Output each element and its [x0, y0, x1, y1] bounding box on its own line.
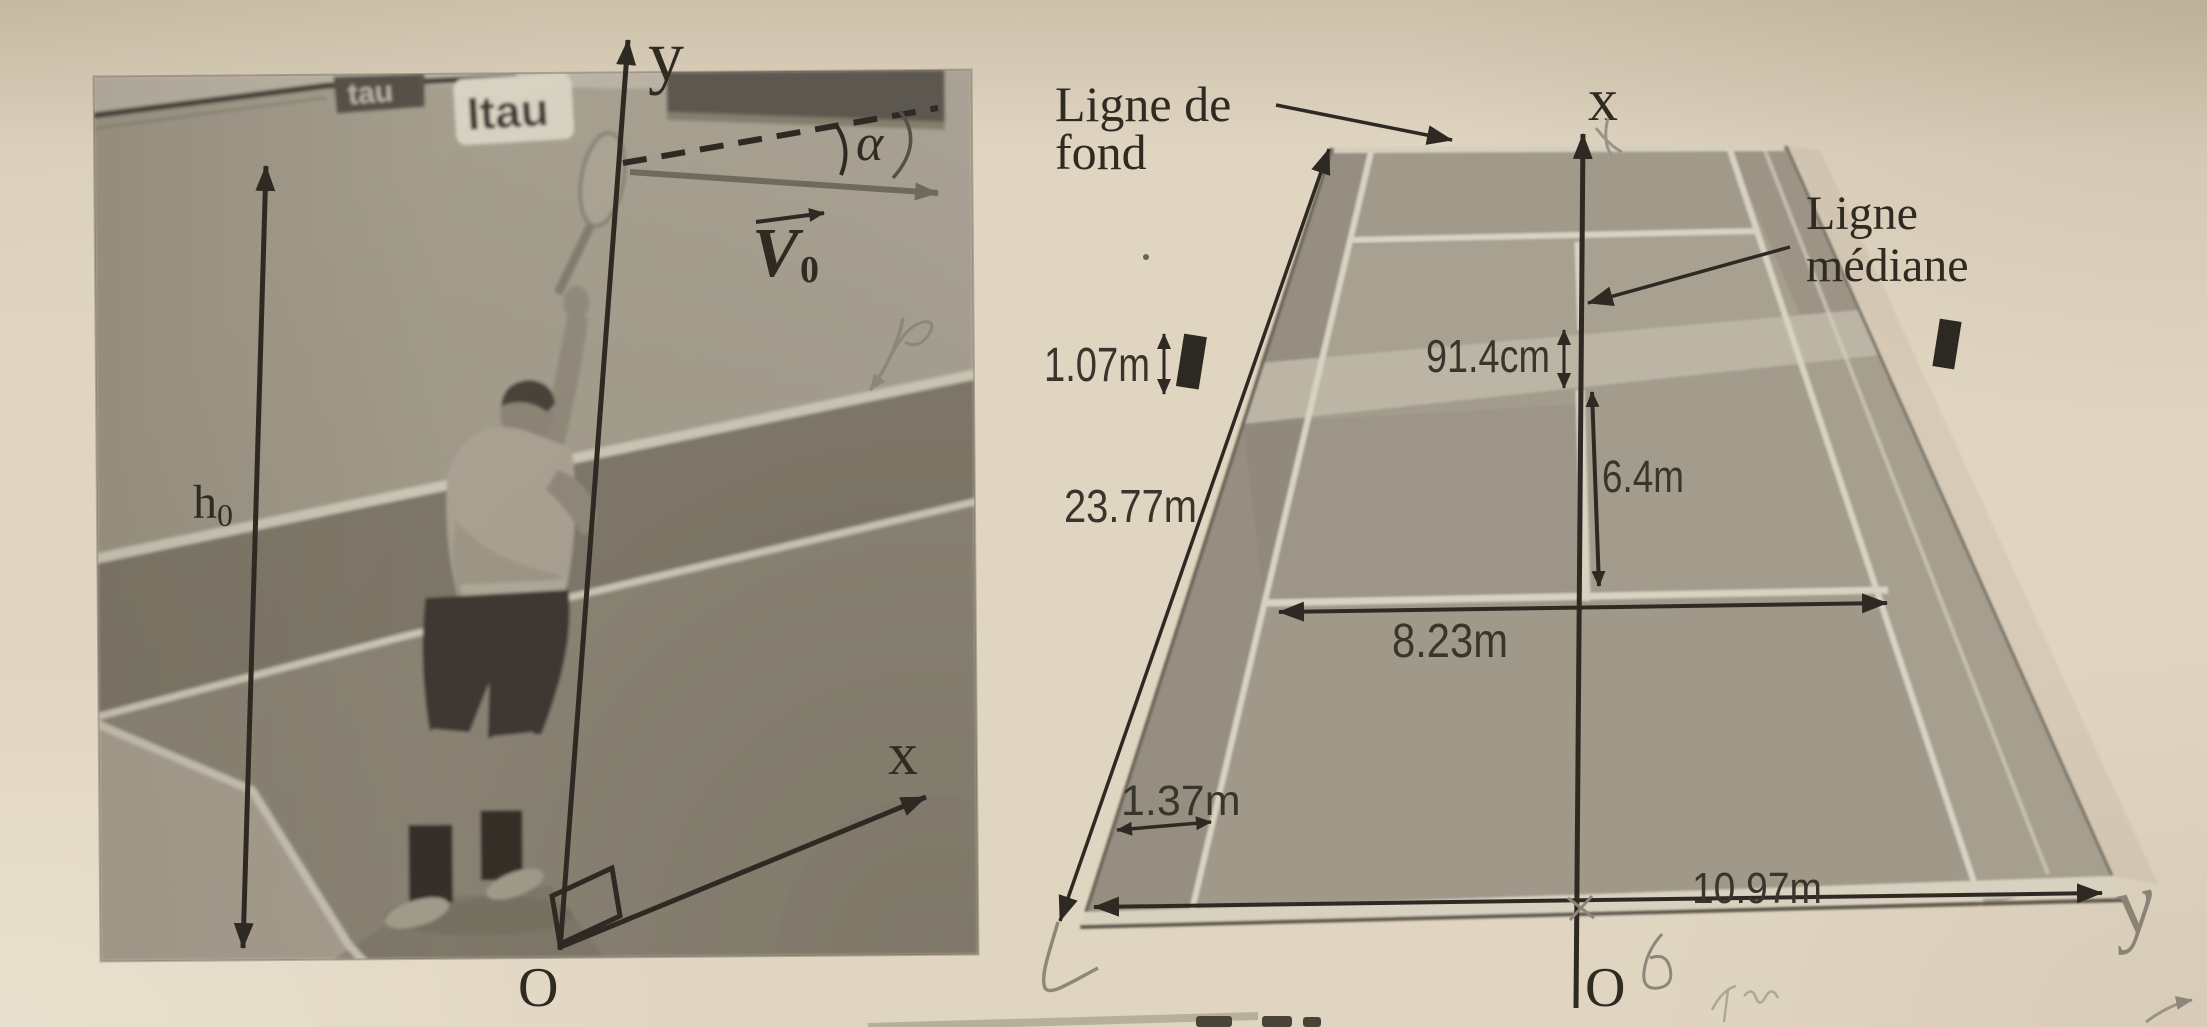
svg-text:y: y [648, 16, 684, 96]
svg-text:V: V [752, 215, 804, 292]
svg-text:Ligne: Ligne [1806, 187, 1918, 240]
svg-text:médiane: médiane [1806, 239, 1969, 292]
svg-text:fond: fond [1055, 124, 1147, 180]
svg-text:1.07m: 1.07m [1044, 339, 1150, 392]
svg-text:8.23m: 8.23m [1392, 615, 1508, 668]
svg-text:1.37m: 1.37m [1121, 777, 1241, 825]
svg-text:O: O [518, 957, 558, 1019]
svg-text:O: O [1585, 957, 1625, 1019]
svg-text:α: α [856, 115, 885, 172]
svg-text:x: x [888, 721, 918, 787]
svg-text:0: 0 [800, 249, 819, 291]
svg-text:10.97m: 10.97m [1692, 864, 1822, 913]
svg-text:91.4cm: 91.4cm [1426, 330, 1550, 382]
svg-text:6.4m: 6.4m [1602, 451, 1684, 502]
svg-text:x: x [1588, 67, 1618, 133]
svg-text:23.77m: 23.77m [1064, 480, 1197, 532]
